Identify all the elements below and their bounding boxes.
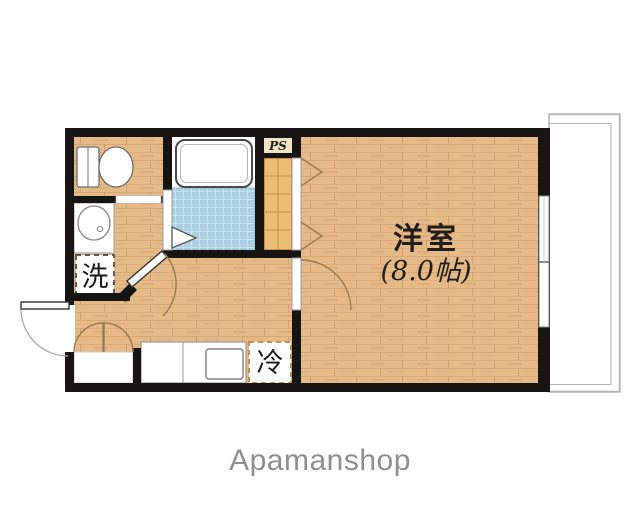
- kitchen-sink-icon: [206, 349, 243, 379]
- main-room-door: [292, 258, 301, 310]
- toilet-icon: [77, 147, 133, 187]
- toilet-door: [116, 196, 161, 204]
- main-room-name: 洋室: [393, 222, 459, 257]
- main-room-size: (8.0帖): [380, 256, 471, 287]
- floorplan-page: PS 洋室 (8.0帖) 洗 冷 Apamanshop: [0, 0, 640, 512]
- balcony: [549, 114, 620, 392]
- genkan-floor: [74, 352, 133, 383]
- pipe-space-label: PS: [268, 139, 287, 153]
- entrance-opening: [64, 305, 75, 352]
- washer-label: 洗: [82, 262, 109, 293]
- bath-door: [163, 190, 172, 250]
- refrigerator-label: 冷: [257, 348, 284, 379]
- pipe-space: PS: [263, 137, 293, 154]
- wash-basin-icon: [74, 203, 114, 253]
- brand-logo-text: Apamanshop: [0, 444, 640, 478]
- entrance-door: [21, 302, 69, 309]
- kitchen-counter: [141, 342, 246, 383]
- bathtub-icon: [176, 140, 252, 187]
- wood-floor: [69, 132, 544, 386]
- closet: [264, 158, 292, 250]
- window-icon: [539, 196, 549, 327]
- floorplan-drawing: PS 洋室 (8.0帖) 洗 冷: [0, 0, 640, 512]
- closet-door: [292, 158, 301, 250]
